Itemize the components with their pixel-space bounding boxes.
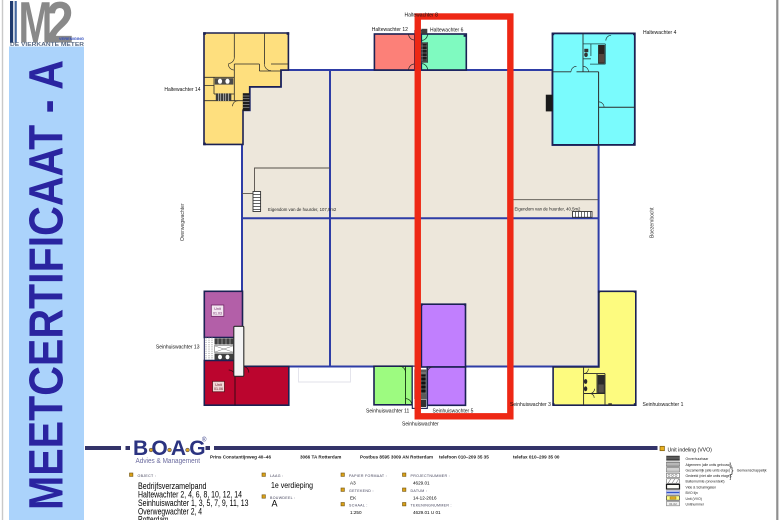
svg-text:Advies & Management: Advies & Management bbox=[136, 458, 201, 465]
svg-text:Rotterdam: Rotterdam bbox=[138, 515, 169, 520]
svg-text:EK: EK bbox=[350, 496, 357, 501]
svg-text:PROJECTNUMMER :: PROJECTNUMMER : bbox=[411, 474, 450, 478]
svg-text:Postbus 8595 3009 AN Rotte: Postbus 8595 3009 AN Rotterdam bbox=[360, 455, 433, 460]
svg-text:Gedeeld (niet alle units etage: Gedeeld (niet alle units etage) bbox=[686, 474, 731, 478]
svg-text:4629.01: 4629.01 bbox=[413, 481, 430, 486]
svg-text:®: ® bbox=[202, 437, 207, 444]
svg-text:Haltewachter 4: Haltewachter 4 bbox=[643, 30, 677, 36]
svg-text:DE VIERKANTE METER: DE VIERKANTE METER bbox=[10, 42, 85, 48]
svg-text:4629.01 U 01: 4629.01 U 01 bbox=[413, 510, 441, 515]
svg-text:Unitnummer: Unitnummer bbox=[686, 502, 705, 506]
svg-text:MEETCERTIFICAAT - A: MEETCERTIFICAAT - A bbox=[21, 60, 74, 510]
svg-text:Vide & Schalmgaten: Vide & Schalmgaten bbox=[686, 485, 717, 489]
svg-text:Seinhuiswachter: Seinhuiswachter bbox=[402, 421, 439, 427]
svg-text:Seinhuiswachter 13: Seinhuiswachter 13 bbox=[156, 345, 200, 351]
svg-text:Haltewachter 14: Haltewachter 14 bbox=[164, 87, 200, 93]
svg-text:GETEKEND :: GETEKEND : bbox=[349, 489, 374, 493]
svg-text:Gemeenschappelijk: Gemeenschappelijk bbox=[737, 468, 767, 472]
svg-text:Eigendom van de huurder, 40,5m: Eigendom van de huurder, 40,5m2 bbox=[515, 207, 582, 212]
svg-text:Buitenruimte (onoverdekt): Buitenruimte (onoverdekt) bbox=[686, 480, 725, 484]
svg-text:Gezamenlijk (alle units etage): Gezamenlijk (alle units etage) bbox=[686, 468, 731, 472]
svg-text:01.03: 01.03 bbox=[213, 311, 222, 315]
svg-text:Prins Constantijnweg 40–46: Prins Constantijnweg 40–46 bbox=[210, 455, 271, 460]
svg-text:SCHAAL :: SCHAAL : bbox=[349, 504, 368, 508]
svg-text:PAPIER FORMAAT :: PAPIER FORMAAT : bbox=[349, 474, 387, 478]
svg-text:Haltewachter 6: Haltewachter 6 bbox=[430, 28, 464, 34]
svg-text:Seinhuiswachter 5: Seinhuiswachter 5 bbox=[433, 408, 474, 414]
svg-text:Boezembocht: Boezembocht bbox=[650, 207, 656, 238]
svg-text:Seinhuiswachter 1: Seinhuiswachter 1 bbox=[643, 402, 684, 408]
svg-text:A: A bbox=[272, 499, 278, 509]
svg-text:VERENIGING: VERENIGING bbox=[59, 36, 84, 41]
svg-text:Overwegwachter: Overwegwachter bbox=[180, 203, 186, 241]
svg-text:01.02: 01.02 bbox=[669, 502, 677, 506]
svg-text:BVO lijn: BVO lijn bbox=[686, 491, 698, 495]
svg-text:TEKENINGNUMMER :: TEKENINGNUMMER : bbox=[411, 504, 452, 508]
svg-text:Haltewachter 8: Haltewachter 8 bbox=[405, 13, 439, 19]
svg-text:Unit (VVO): Unit (VVO) bbox=[686, 497, 702, 501]
svg-text:Algemeen (alle units gebouw): Algemeen (alle units gebouw) bbox=[686, 463, 731, 467]
svg-text:1e verdieping: 1e verdieping bbox=[271, 480, 313, 490]
svg-text:3066 TA Rotterdam: 3066 TA Rotterdam bbox=[300, 455, 341, 460]
svg-text:telefoon 010–209 35 35: telefoon 010–209 35 35 bbox=[439, 455, 489, 460]
svg-text:LAAG :: LAAG : bbox=[270, 474, 283, 478]
svg-text:14-12-2016: 14-12-2016 bbox=[413, 496, 437, 501]
svg-text:Unit: Unit bbox=[215, 383, 221, 387]
svg-text:Unit indeling (VVO): Unit indeling (VVO) bbox=[668, 448, 713, 454]
svg-text:Eigendom van de huurder, 107,9: Eigendom van de huurder, 107,9m2 bbox=[268, 207, 337, 212]
svg-text:DATUM :: DATUM : bbox=[411, 489, 428, 493]
svg-text:OBJECT :: OBJECT : bbox=[138, 474, 157, 478]
svg-text:Unit: Unit bbox=[214, 307, 220, 311]
svg-text:A3: A3 bbox=[350, 481, 356, 486]
svg-text:01.06: 01.06 bbox=[214, 387, 223, 391]
svg-text:Onverhuurbaar: Onverhuurbaar bbox=[686, 457, 710, 461]
svg-text:1:250: 1:250 bbox=[350, 510, 362, 515]
svg-text:Haltewachter 12: Haltewachter 12 bbox=[372, 27, 408, 33]
svg-text:Seinhuiswachter 3: Seinhuiswachter 3 bbox=[510, 402, 551, 408]
svg-text:Seinhuiswachter 11: Seinhuiswachter 11 bbox=[366, 408, 409, 414]
svg-text:telefax 010–209 35 00: telefax 010–209 35 00 bbox=[513, 455, 560, 460]
